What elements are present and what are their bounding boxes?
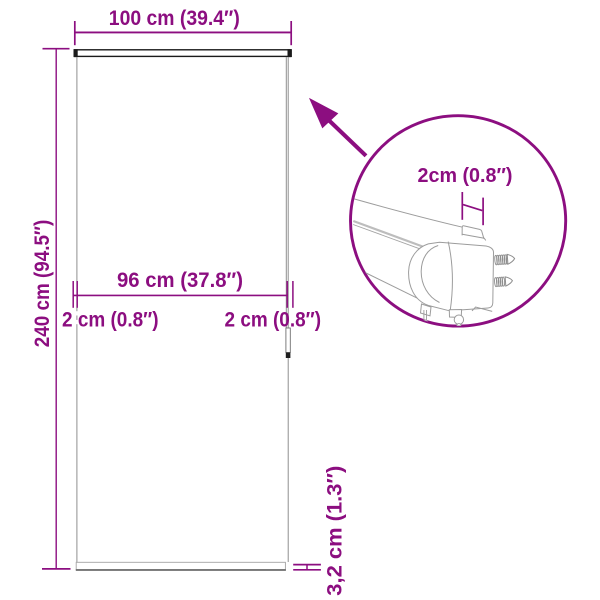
svg-text:96 cm (37.8″): 96 cm (37.8″) xyxy=(117,268,243,292)
svg-text:240 cm (94.5″): 240 cm (94.5″) xyxy=(30,220,54,348)
svg-text:3,2 cm (1.3″): 3,2 cm (1.3″) xyxy=(323,466,347,596)
svg-text:2cm (0.8″): 2cm (0.8″) xyxy=(418,165,513,187)
svg-text:2 cm (0.8″): 2 cm (0.8″) xyxy=(62,307,159,331)
svg-text:100 cm (39.4″): 100 cm (39.4″) xyxy=(109,6,240,30)
svg-text:2 cm (0.8″): 2 cm (0.8″) xyxy=(225,307,322,331)
